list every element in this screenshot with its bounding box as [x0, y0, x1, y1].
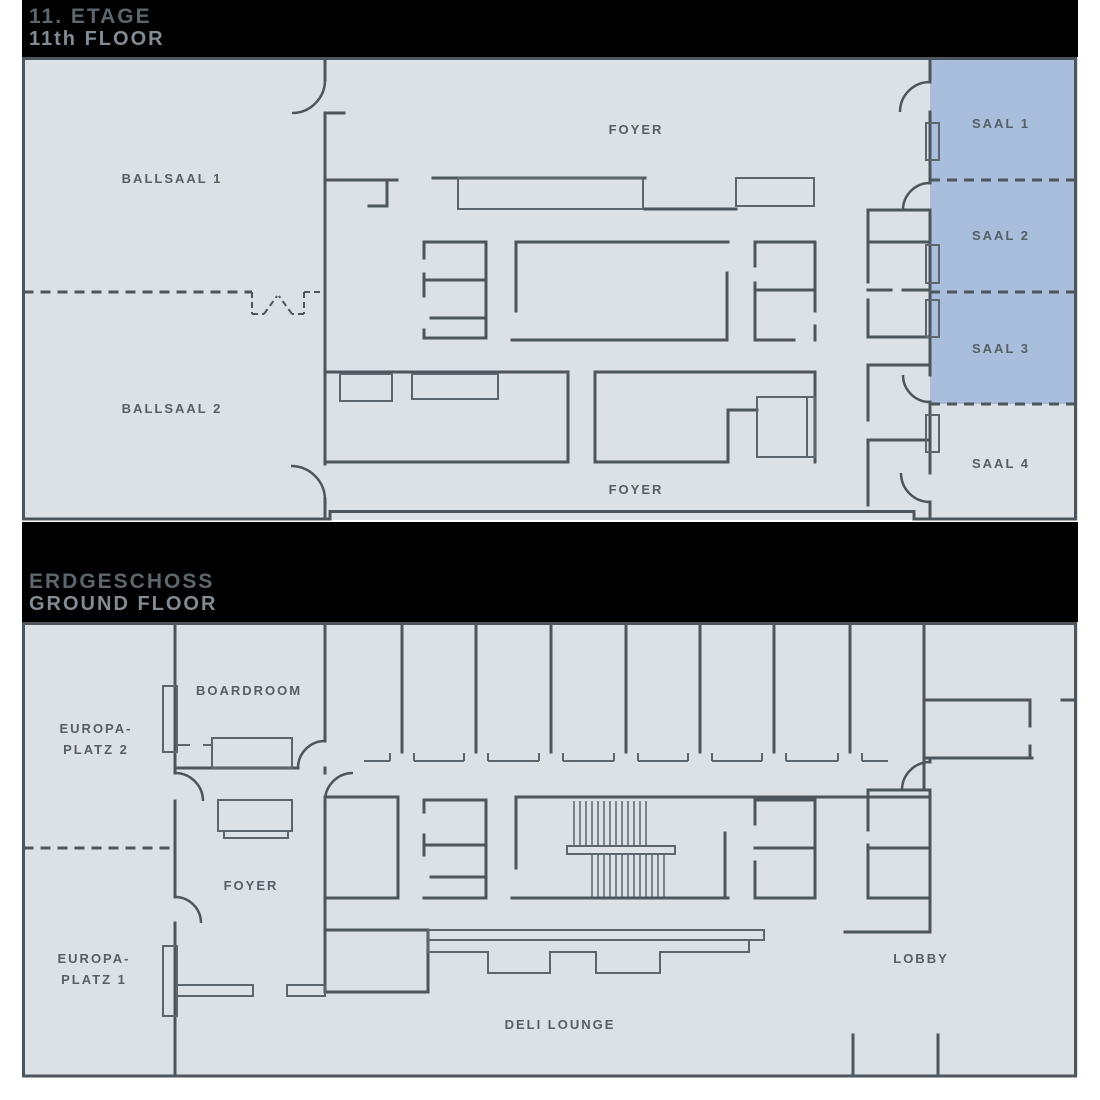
label-lobby: LOBBY	[893, 951, 949, 966]
label-boardroom: BOARDROOM	[196, 683, 302, 698]
label-ballsaal-2: BALLSAAL 2	[122, 401, 223, 416]
label-foyer-top: FOYER	[609, 122, 664, 137]
label-saal-1: SAAL 1	[972, 116, 1030, 131]
header-ground-floor: ERDGESCHOSS GROUND FLOOR	[22, 522, 1078, 622]
label-ballsaal-1: BALLSAAL 1	[122, 171, 223, 186]
floor-title: 11. ETAGE	[29, 6, 1078, 28]
floorplan-page: 11. ETAGE 11th FLOOR	[0, 0, 1100, 1100]
header-11th-floor: 11. ETAGE 11th FLOOR	[22, 0, 1078, 57]
label-europaplatz-1-line2: PLATZ 1	[61, 972, 127, 987]
label-foyer: FOYER	[224, 878, 279, 893]
label-saal-3: SAAL 3	[972, 341, 1030, 356]
floor-subtitle: GROUND FLOOR	[29, 593, 1078, 615]
label-europaplatz-2-line1: EUROPA-	[60, 721, 133, 736]
label-saal-4: SAAL 4	[972, 456, 1030, 471]
floorplan-11th-floor: BALLSAAL 1 BALLSAAL 2 FOYER FOYER SAAL 1…	[22, 57, 1078, 522]
floorplan-ground-floor: EUROPA- PLATZ 2 BOARDROOM FOYER EUROPA- …	[22, 622, 1078, 1082]
label-foyer-bottom: FOYER	[609, 482, 664, 497]
floor-title: ERDGESCHOSS	[29, 571, 1078, 593]
label-deli-lounge: DELI LOUNGE	[505, 1017, 616, 1032]
label-europaplatz-2-line2: PLATZ 2	[63, 742, 129, 757]
label-europaplatz-1-line1: EUROPA-	[58, 951, 131, 966]
floor-subtitle: 11th FLOOR	[29, 28, 1078, 50]
label-saal-2: SAAL 2	[972, 228, 1030, 243]
